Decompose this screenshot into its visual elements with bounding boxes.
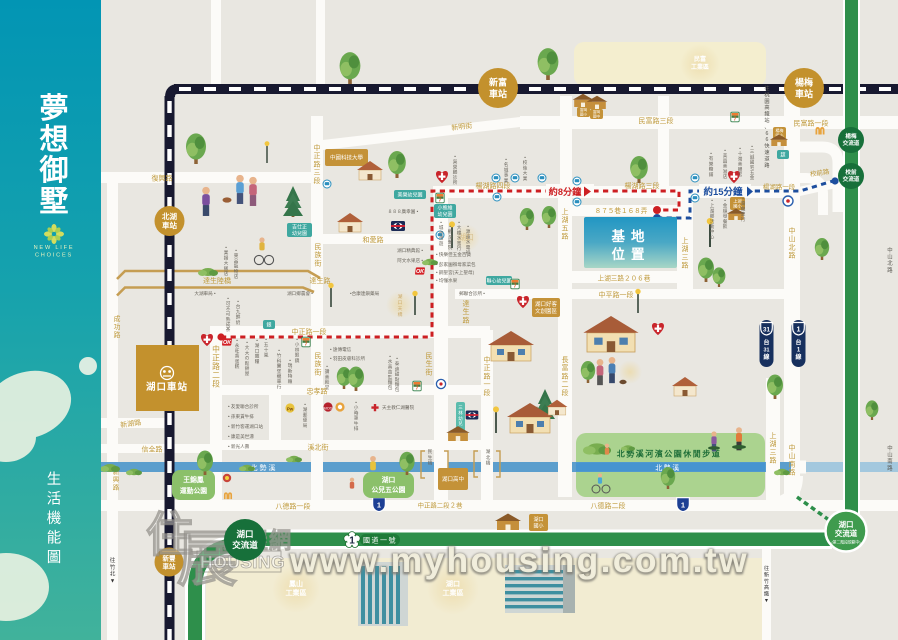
svg-text:湖口: 湖口 [458, 233, 474, 242]
svg-text:楊梅: 楊梅 [845, 132, 857, 140]
svg-text:中國科技大學: 中國科技大學 [330, 153, 364, 161]
svg-text:８８８廣幸園 •: ８８８廣幸園 • [388, 208, 419, 215]
svg-text:民族街: 民族街 [315, 243, 322, 267]
svg-text:夢: 夢 [39, 92, 68, 125]
svg-text:往竹北▼: 往竹北▼ [110, 556, 116, 584]
svg-text:公兒五公園: 公兒五公園 [372, 485, 406, 494]
svg-text:楊湖路三段: 楊湖路三段 [625, 181, 660, 190]
svg-text:• 新竹客運湖口站: • 新竹客運湖口站 [228, 423, 263, 430]
svg-text:• 遠傳電信: • 遠傳電信 [330, 346, 352, 353]
svg-text:中山南路: 中山南路 [789, 443, 796, 477]
svg-text:中平路一段: 中平路一段 [599, 290, 634, 299]
svg-text:線: 線 [795, 353, 801, 361]
svg-text:信全路: 信全路 [142, 445, 163, 454]
svg-text:上湖三路: 上湖三路 [682, 236, 689, 270]
svg-text:成功路: 成功路 [114, 314, 121, 339]
svg-text:校前: 校前 [845, 168, 857, 176]
svg-text:楊湖路一段: 楊湖路一段 [763, 182, 796, 191]
svg-text:國道一號: 國道一號 [363, 536, 397, 545]
svg-text:• 友愛聯合診所: • 友愛聯合診所 [228, 403, 259, 410]
svg-text:•業揚大飯店: •業揚大飯店 [224, 245, 229, 277]
svg-text:美樂幼兒園: 美樂幼兒園 [397, 191, 422, 198]
svg-text:NEW LIFE: NEW LIFE [34, 245, 75, 251]
svg-text:富岡: 富岡 [580, 107, 588, 112]
svg-text:•竹科竇堡機車行: •竹科竇堡機車行 [277, 348, 282, 390]
svg-text:民生街: 民生街 [426, 352, 433, 376]
svg-text:達生路: 達生路 [463, 299, 470, 324]
svg-text:• 均懂水果: • 均懂水果 [436, 277, 458, 284]
svg-text:國小: 國小 [580, 112, 588, 117]
svg-text:中正路一段: 中正路一段 [292, 327, 327, 336]
svg-text:線: 線 [763, 353, 769, 361]
svg-text:•水真苗監麵包: •水真苗監麵包 [388, 354, 393, 390]
svg-text:•吳榮鵬診所: •吳榮鵬診所 [453, 154, 458, 186]
svg-text:•美圓美滋店: •美圓美滋店 [723, 148, 728, 180]
svg-text:車站: 車站 [489, 88, 507, 99]
svg-text:湖口: 湖口 [839, 519, 854, 529]
svg-text:MOS: MOS [323, 406, 332, 411]
svg-text:CHOICES: CHOICES [35, 253, 73, 259]
svg-text:台: 台 [795, 339, 801, 347]
svg-text:民族街: 民族街 [315, 352, 322, 376]
svg-text:湖口: 湖口 [236, 529, 253, 539]
svg-text:北勢溪: 北勢溪 [251, 463, 278, 472]
svg-text:工業區: 工業區 [286, 588, 307, 597]
svg-text:•合康連鎖藥局: •合康連鎖藥局 [350, 290, 380, 297]
svg-text:•泰迪甜點麵包: •泰迪甜點麵包 [395, 356, 400, 392]
svg-text:民富: 民富 [694, 55, 706, 63]
svg-text:王錦鳳: 王錦鳳 [183, 475, 204, 484]
svg-text:1: 1 [377, 501, 381, 510]
svg-text:•上湖鄉活動中心: •上湖鄉活動中心 [710, 198, 715, 239]
svg-text:聯心幼兒園: 聯心幼兒園 [486, 277, 511, 284]
svg-text:中山南路: 中山南路 [887, 444, 893, 472]
svg-text:湖口高中: 湖口高中 [442, 475, 464, 483]
svg-text:中山北路: 中山北路 [789, 226, 796, 260]
svg-text:1: 1 [681, 501, 685, 510]
svg-text:中正路一段: 中正路一段 [484, 355, 491, 397]
svg-text:湖口: 湖口 [382, 475, 396, 484]
svg-text:上湖三路２０６巷: 上湖三路２０６巷 [598, 274, 651, 283]
svg-text:位置: 位置 [612, 246, 651, 262]
svg-text:生: 生 [47, 471, 62, 488]
svg-text:•永旺香蛋糕: •永旺香蛋糕 [235, 338, 240, 370]
svg-text:圖: 圖 [47, 549, 62, 566]
svg-text:湖口車站: 湖口車站 [146, 381, 188, 393]
svg-text:長富路二段: 長富路二段 [562, 356, 569, 397]
svg-text:31: 31 [764, 348, 770, 354]
svg-text:機: 機 [47, 510, 62, 527]
svg-text:能: 能 [47, 530, 62, 547]
svg-text:湖口天橋: 湖口天橋 [398, 293, 403, 318]
svg-text:活: 活 [47, 491, 62, 508]
svg-text:Pw: Pw [287, 407, 294, 412]
svg-text:北湖: 北湖 [162, 211, 177, 221]
svg-text:復興路: 復興路 [152, 174, 173, 183]
svg-text:民富路三段: 民富路三段 [639, 116, 674, 125]
svg-text:上湖五路: 上湖五路 [562, 207, 569, 241]
svg-text:• 新光人壽: • 新光人壽 [228, 443, 250, 450]
svg-text:富岡: 富岡 [593, 109, 601, 114]
svg-text:•十灣美體宮: •十灣美體宮 [738, 146, 743, 178]
svg-text:幼兒園: 幼兒園 [292, 230, 307, 237]
svg-text:車站: 車站 [163, 562, 177, 571]
svg-text:交流道: 交流道 [835, 528, 858, 538]
svg-text:八德路二段: 八德路二段 [591, 501, 626, 510]
svg-text:新富: 新富 [489, 77, 507, 88]
svg-text:上湖三路: 上湖三路 [770, 431, 777, 465]
svg-text:國中: 國中 [593, 114, 601, 119]
svg-text:大湖車局 •: 大湖車局 • [194, 290, 216, 297]
svg-text:台: 台 [763, 339, 769, 347]
svg-text:湖口精典館 •: 湖口精典館 • [397, 247, 423, 254]
svg-text:民富路一段: 民富路一段 [794, 119, 829, 128]
svg-text:湖北橋: 湖北橋 [486, 448, 491, 467]
svg-text:文創園區: 文創園區 [535, 307, 558, 315]
svg-text:御: 御 [38, 154, 68, 187]
svg-text:民生橋: 民生橋 [428, 449, 433, 467]
svg-text:往新竹高鐵▼: 往新竹高鐵▼ [764, 564, 770, 604]
svg-text:•金順發餐飲: •金順發餐飲 [723, 198, 728, 230]
svg-text:湖口好客: 湖口好客 [535, 300, 558, 308]
svg-text:墅: 墅 [39, 186, 68, 218]
svg-text:郵聯合診所 •: 郵聯合診所 • [459, 290, 485, 297]
svg-text:• 彭家園褓母家菜包: • 彭家園褓母家菜包 [436, 261, 476, 268]
svg-text:交流道: 交流道 [843, 175, 860, 183]
svg-text:車站: 車站 [162, 220, 177, 230]
svg-text:約15分鐘: 約15分鐘 [703, 186, 743, 198]
svg-text:國小: 國小 [533, 522, 543, 529]
svg-text:•大大の鬆餅屋: •大大の鬆餅屋 [245, 340, 250, 377]
svg-text:湖口鄉農會 •: 湖口鄉農會 • [287, 290, 313, 297]
svg-text:1: 1 [797, 325, 801, 334]
svg-text:• 康是美世濤: • 康是美世濤 [228, 433, 254, 440]
svg-text:達生路: 達生路 [310, 276, 331, 285]
svg-text:達生陸橋: 達生陸橋 [203, 276, 231, 285]
svg-text:超: 超 [780, 151, 785, 158]
svg-text:小熊維: 小熊維 [437, 205, 452, 212]
svg-text:楊梅: 楊梅 [776, 127, 784, 133]
svg-text:交流道: 交流道 [232, 540, 258, 550]
svg-text:1: 1 [349, 536, 355, 547]
svg-text:中正路二段: 中正路二段 [212, 344, 220, 388]
svg-text:• 孫東賃牛排: • 孫東賃牛排 [228, 413, 254, 420]
svg-text:中正路二段２巷: 中正路二段２巷 [418, 501, 463, 510]
svg-text:溪北街: 溪北街 [308, 443, 329, 452]
svg-text:中正路三段: 中正路三段 [314, 143, 321, 185]
svg-text:約8分鐘: 約8分鐘 [549, 186, 582, 197]
svg-text:車站: 車站 [795, 88, 813, 99]
svg-text:八德路一段: 八德路一段 [276, 502, 311, 511]
svg-text:銀: 銀 [266, 321, 271, 328]
svg-text:•東品寵物店: •東品寵物店 [234, 248, 239, 280]
svg-text:幼兒園: 幼兒園 [437, 211, 452, 218]
svg-text:基地: 基地 [612, 228, 651, 244]
svg-text:和愛路: 和愛路 [363, 235, 384, 244]
svg-text:•小時罩牛排: •小時罩牛排 [354, 400, 359, 432]
svg-text:想: 想 [39, 123, 68, 156]
svg-text:阿文水果店 •: 阿文水果店 • [397, 257, 423, 264]
svg-text:吉仕正: 吉仕正 [292, 224, 307, 231]
svg-text:８７５巷１６８弄: ８７５巷１６８弄 [595, 207, 648, 215]
svg-text:• 鋼聖宮(天上聖母): • 鋼聖宮(天上聖母) [436, 269, 475, 276]
svg-text:•可不可熟成茶: •可不可熟成茶 [226, 296, 231, 332]
svg-text:工業區: 工業區 [691, 63, 709, 71]
svg-text:楊梅: 楊梅 [795, 77, 813, 88]
svg-text:中山北路: 中山北路 [887, 246, 893, 274]
svg-text:(第二階段規劃中): (第二階段規劃中) [831, 540, 861, 545]
svg-text:湖口: 湖口 [533, 516, 543, 523]
svg-text:天主教仁湖醫院: 天主教仁湖醫院 [382, 404, 415, 411]
svg-text:三林幼兒: 三林幼兒 [458, 405, 463, 427]
svg-text:交流道: 交流道 [843, 139, 860, 147]
svg-text:工業區: 工業區 [443, 588, 464, 597]
svg-text:• 快樂佳五金百貨: • 快樂佳五金百貨 [436, 251, 471, 258]
svg-text:•三誠國宅五金: •三誠國宅五金 [750, 144, 755, 180]
svg-text:往桃園高鐵站、66快速道路: 往桃園高鐵站、66快速道路 [764, 84, 770, 169]
svg-text:31: 31 [763, 327, 770, 334]
svg-text:運動公園: 運動公園 [180, 486, 207, 495]
svg-text:• 羽田皮膚科診所: • 羽田皮膚科診所 [330, 355, 365, 362]
